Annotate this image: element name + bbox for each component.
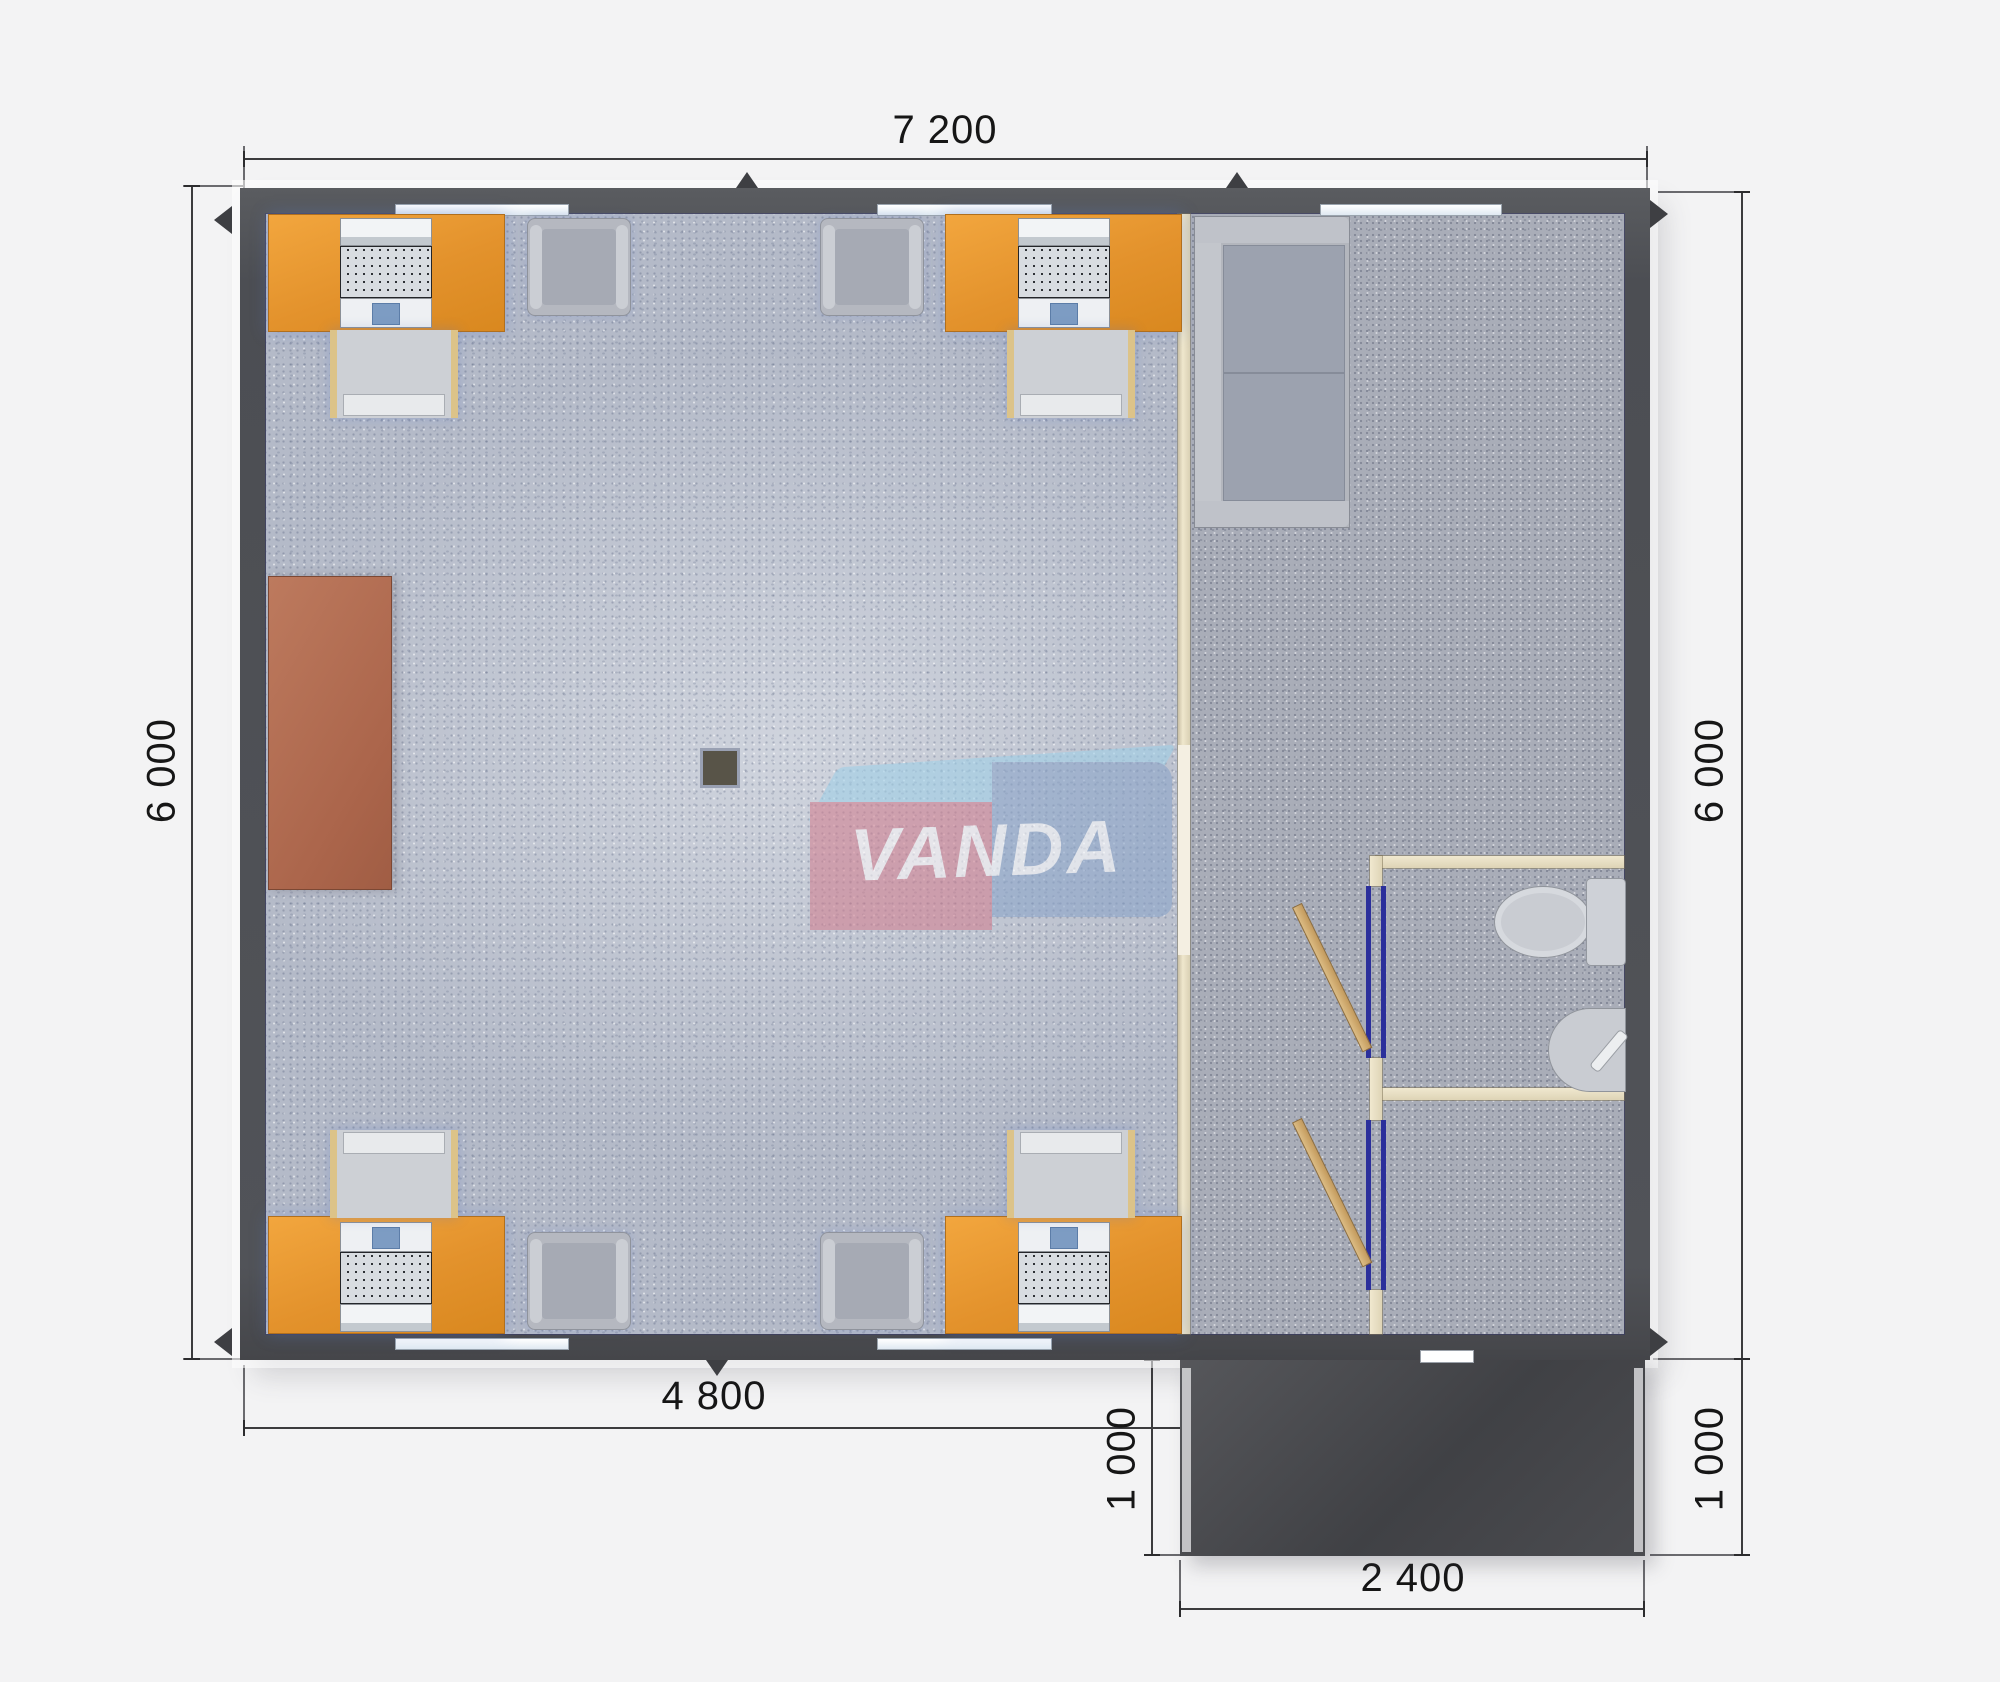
computer-base (340, 298, 432, 328)
toilet-icon (1494, 886, 1592, 958)
armrest (616, 1239, 628, 1323)
dim-line-2400 (1180, 1608, 1645, 1610)
sofa-armrest (1195, 217, 1349, 243)
dim-tick (1734, 1554, 1750, 1556)
armrest (909, 1239, 921, 1323)
dim-line-top (244, 158, 1648, 160)
utility-door-frame (1381, 1120, 1386, 1290)
sofa (1194, 216, 1350, 528)
armchair-bottom-2 (820, 1232, 924, 1330)
window-bottom-2 (877, 1338, 1052, 1350)
sofa-cushion (1223, 373, 1345, 501)
dim-label-height-left: 6 000 (140, 671, 185, 871)
computer-top-left (340, 218, 432, 328)
keyboard-icon (340, 246, 432, 298)
dim-tick (1646, 151, 1648, 167)
window-top-3 (1320, 204, 1502, 216)
armrest (909, 225, 921, 309)
armchair-seat (542, 229, 616, 305)
office-chair-bottom-left (330, 1130, 458, 1218)
sofa-back (1195, 217, 1221, 527)
keyboard-icon (340, 1252, 432, 1304)
armrest (530, 225, 542, 309)
dim-line-right (1741, 192, 1743, 1556)
dim-label-width-total: 7 200 (845, 108, 1045, 153)
dim-label-porch-depth-right: 1 000 (1688, 1359, 1733, 1559)
armchair-seat (835, 229, 909, 305)
window-bottom-1 (395, 1338, 569, 1350)
entrance-porch (1180, 1360, 1645, 1556)
dim-tick (1144, 1554, 1160, 1556)
computer-bottom-left (340, 1222, 432, 1332)
armrest (823, 225, 835, 309)
computer-base (1018, 298, 1110, 328)
dim-label-porch-width: 2 400 (1313, 1556, 1513, 1601)
wc-wall-top (1376, 856, 1624, 868)
computer-top-right (1018, 218, 1110, 328)
module-joint-mark-top-1 (736, 172, 758, 188)
sofa-cushion (1223, 245, 1345, 373)
sofa-armrest (1195, 501, 1349, 527)
armchair-seat (835, 1243, 909, 1319)
chair-backrest (1020, 394, 1122, 416)
chair-backrest (343, 394, 445, 416)
corner-arrow-bottom-right (1650, 1328, 1668, 1356)
corner-arrow-bottom-left (214, 1328, 232, 1356)
wc-door-frame (1366, 886, 1371, 1058)
toilet-tank (1586, 878, 1626, 966)
armrest (823, 1239, 835, 1323)
logo-text: VANDA (798, 801, 1176, 899)
chair-backrest (343, 1132, 445, 1154)
monitor-icon (1018, 1304, 1110, 1332)
dim-label-office-width: 4 800 (614, 1374, 814, 1419)
computer-base (1018, 1222, 1110, 1252)
wc-wall-left-seg2 (1370, 1058, 1382, 1120)
monitor-icon (340, 1304, 432, 1332)
armrest (616, 225, 628, 309)
storage-cabinet (268, 576, 392, 890)
floor-outlet-box (700, 748, 740, 788)
dim-label-porch-depth-left: 1 000 (1100, 1359, 1145, 1559)
chair-backrest (1020, 1132, 1122, 1154)
dim-tick (1179, 1601, 1181, 1617)
dim-tick (184, 185, 200, 187)
corner-arrow-top-left (214, 206, 232, 234)
armchair-top-2 (820, 218, 924, 316)
floor-plan-canvas: 7 200 6 000 6 000 4 800 1 000 1 000 2 40… (0, 0, 2000, 1682)
keyboard-icon (1018, 1252, 1110, 1304)
armchair-bottom-1 (527, 1232, 631, 1330)
wc-wall-left-seg3 (1370, 1290, 1382, 1334)
dim-tick (243, 151, 245, 167)
computer-base (340, 1222, 432, 1252)
porch-side-rail (1634, 1368, 1643, 1552)
dim-label-height-right: 6 000 (1688, 671, 1733, 871)
entrance-door-threshold (1420, 1350, 1474, 1363)
armchair-seat (542, 1243, 616, 1319)
corner-sink-icon (1548, 1008, 1626, 1092)
faucet-icon (1589, 1029, 1629, 1073)
dim-tick (184, 1358, 200, 1360)
dim-line-4800 (244, 1427, 1185, 1429)
armchair-top-1 (527, 218, 631, 316)
dim-tick (243, 1420, 245, 1436)
vanda-watermark-logo: VANDA (795, 750, 1180, 940)
module-joint-mark-bottom (706, 1360, 728, 1376)
keyboard-icon (1018, 246, 1110, 298)
office-chair-bottom-right (1007, 1130, 1135, 1218)
dim-tick (1643, 1601, 1645, 1617)
office-chair-top-left (330, 330, 458, 418)
computer-bottom-right (1018, 1222, 1110, 1332)
office-chair-top-right (1007, 330, 1135, 418)
corner-arrow-top-right (1650, 200, 1668, 228)
dim-line-left (191, 186, 193, 1360)
wc-wall-left-seg1 (1370, 856, 1382, 886)
armrest (530, 1239, 542, 1323)
module-joint-mark-top-2 (1226, 172, 1248, 188)
monitor-icon (340, 218, 432, 246)
dim-tick (1734, 1358, 1750, 1360)
monitor-icon (1018, 218, 1110, 246)
dim-line-porch-left (1151, 1360, 1153, 1556)
porch-side-rail (1182, 1368, 1191, 1552)
dim-tick (1734, 191, 1750, 193)
wc-door-frame (1381, 886, 1386, 1058)
